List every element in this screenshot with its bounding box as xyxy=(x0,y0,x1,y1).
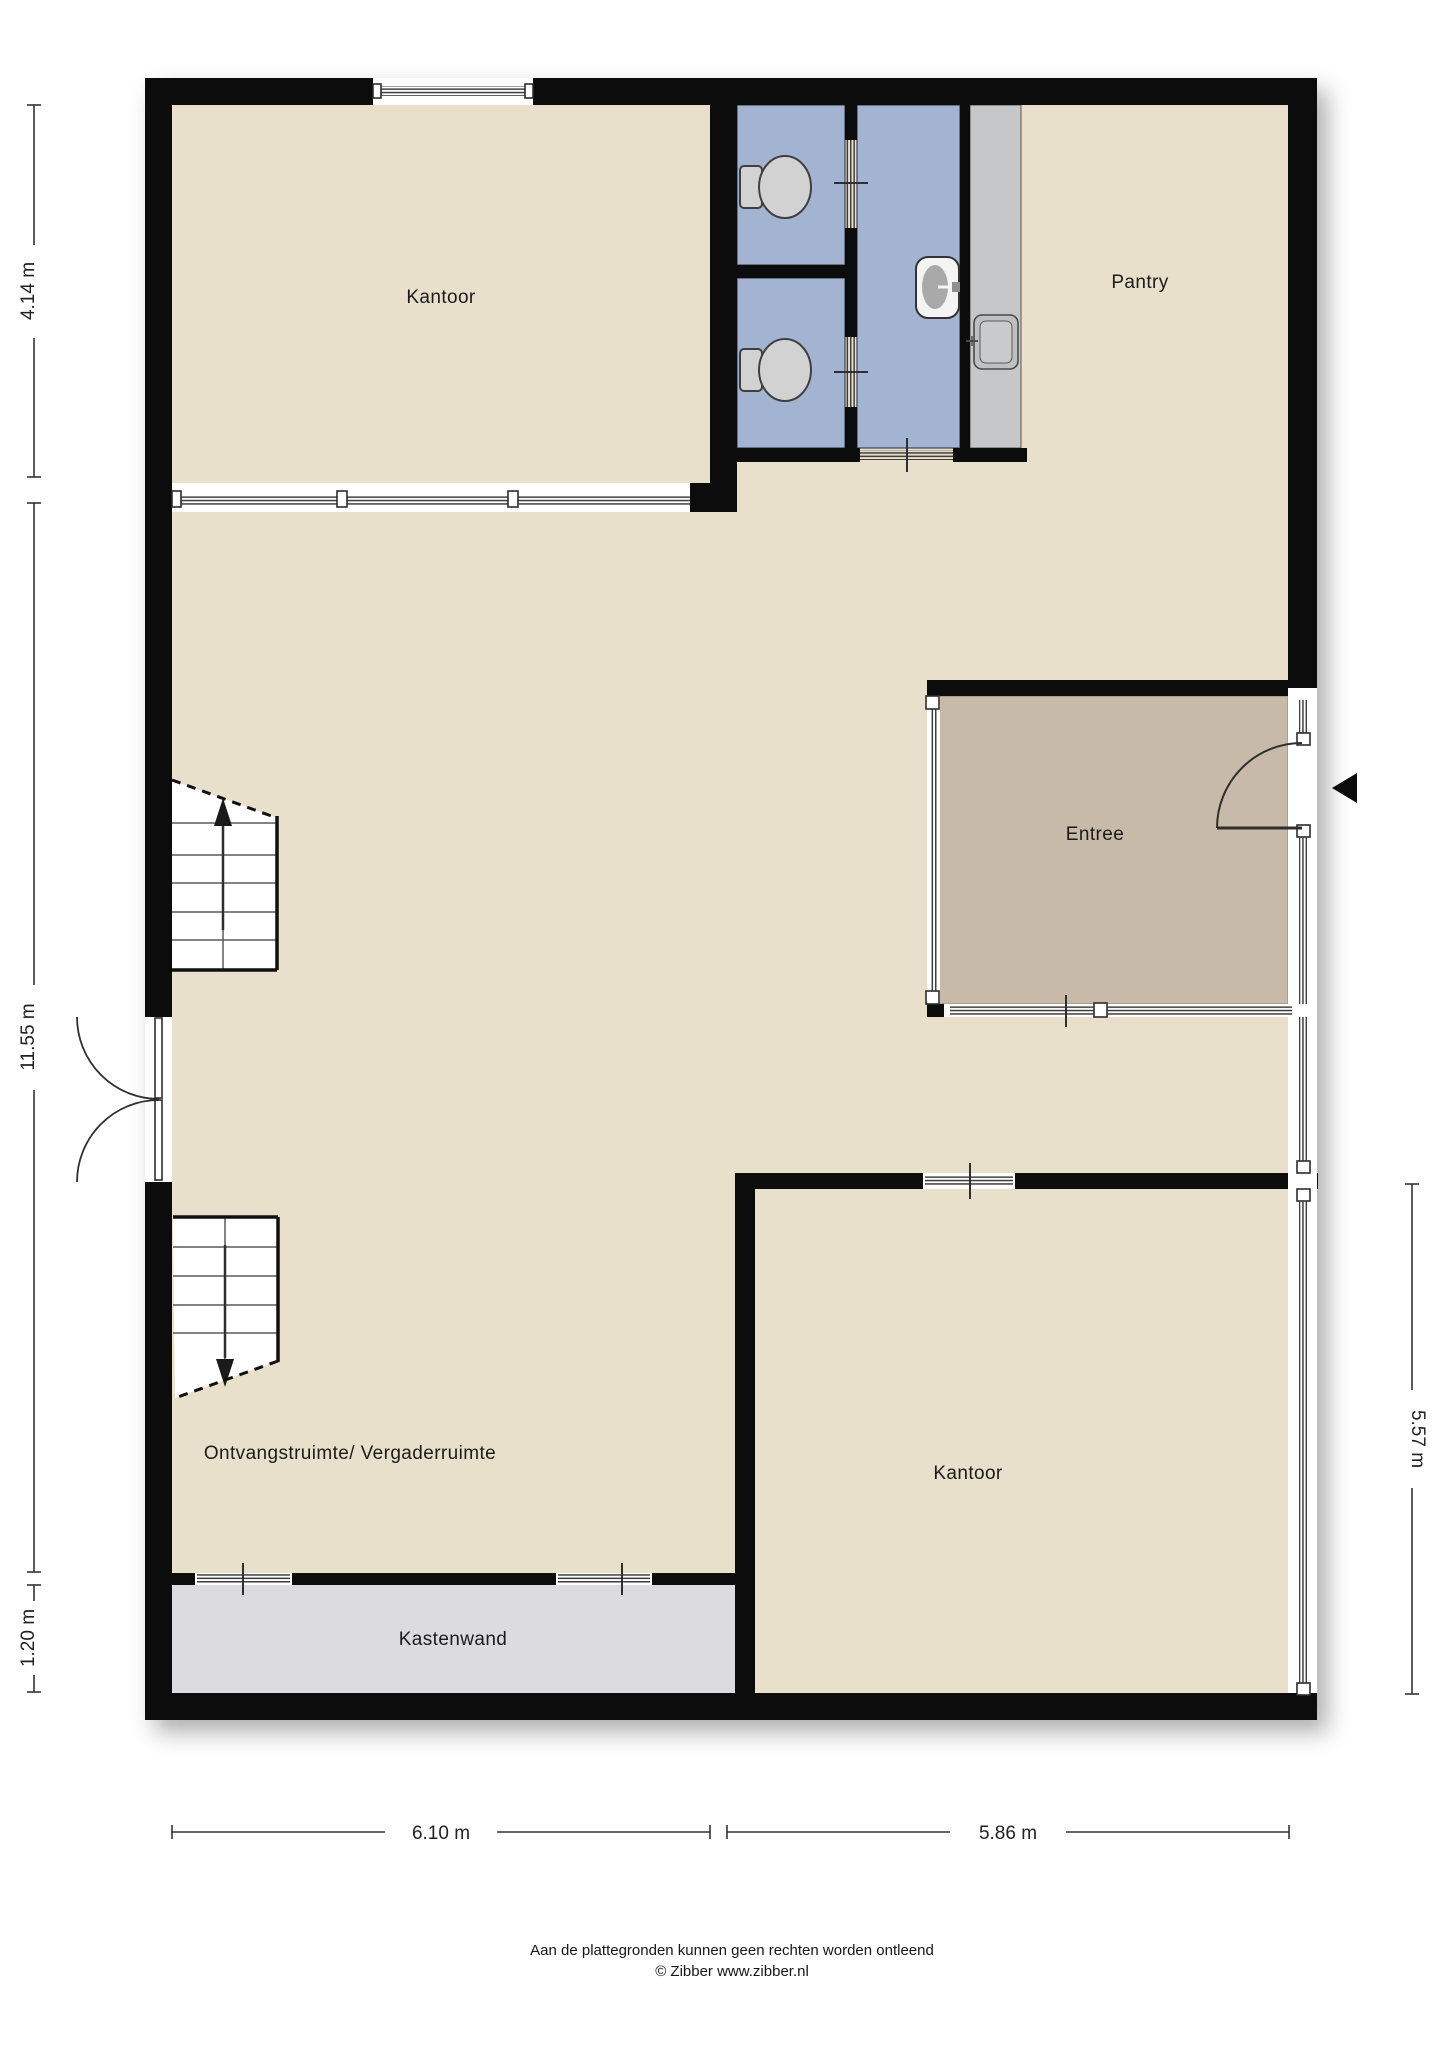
window-icon xyxy=(926,696,940,1004)
dimension-label: 4.14 m xyxy=(18,262,39,320)
dimension-label: 1.20 m xyxy=(18,1609,39,1667)
room-label-kantoor-bottom: Kantoor xyxy=(933,1463,1003,1484)
dimension-bottom-left: 6.10 m xyxy=(172,1823,710,1844)
dimension-bottom-right: 5.86 m xyxy=(727,1823,1289,1844)
window-icon xyxy=(1299,1017,1307,1161)
footer-credit: © Zibber www.zibber.nl xyxy=(655,1963,809,1980)
footer-disclaimer: Aan de plattegronden kunnen geen rechten… xyxy=(530,1942,934,1959)
pantry-counter xyxy=(970,105,1021,448)
room-label-pantry: Pantry xyxy=(1111,272,1168,293)
dimension-left-bottom: 1.20 m xyxy=(18,1585,41,1692)
dimension-label: 11.55 m xyxy=(18,1003,39,1070)
dimension-left-middle: 11.55 m xyxy=(18,503,41,1572)
dimension-label: 6.10 m xyxy=(412,1823,470,1844)
dimension-label: 5.86 m xyxy=(979,1823,1037,1844)
room-label-ontvangstruimte: Ontvangstruimte/ Vergaderruimte xyxy=(204,1443,496,1464)
entrance-arrow-icon xyxy=(1332,773,1357,803)
room-floor-entree xyxy=(938,696,1288,1004)
toilet-icon xyxy=(740,156,811,218)
window-icon xyxy=(172,483,690,512)
dimension-right: 5.57 m xyxy=(1405,1184,1428,1694)
kitchen-sink-icon xyxy=(966,315,1018,369)
room-label-kantoor-top: Kantoor xyxy=(406,287,476,308)
floorplan-page: Kantoor Pantry Entree Ontvangstruimte/ V… xyxy=(0,0,1448,2048)
dimension-left-top: 4.14 m xyxy=(18,105,41,477)
washbasin-icon xyxy=(916,257,960,318)
room-label-kastenwand: Kastenwand xyxy=(399,1629,508,1650)
room-label-entree: Entree xyxy=(1066,824,1124,845)
window-icon xyxy=(1299,700,1307,733)
window-icon xyxy=(1299,1201,1307,1685)
dimension-label: 5.57 m xyxy=(1407,1410,1428,1468)
toilet-icon xyxy=(740,339,811,401)
double-door-icon xyxy=(77,1017,172,1182)
floor-plan-svg: Kantoor Pantry Entree Ontvangstruimte/ V… xyxy=(0,0,1448,2048)
window-icon xyxy=(1299,837,1307,1004)
window-icon xyxy=(373,78,533,105)
